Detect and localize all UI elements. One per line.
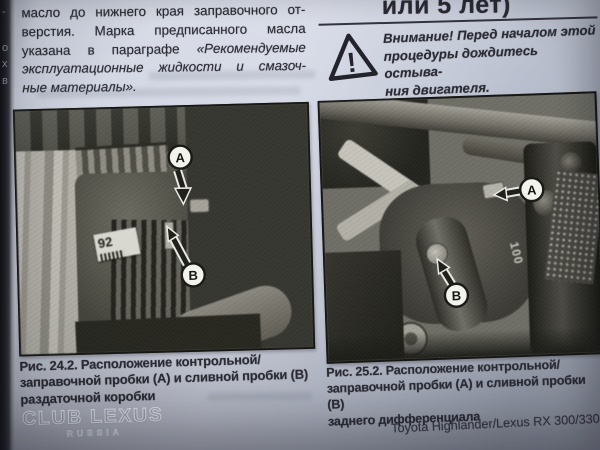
warning-triangle-icon: !	[322, 27, 380, 87]
figure-25-2-annotations: A B	[320, 93, 600, 361]
gutter-text-fragment: в	[2, 75, 8, 87]
book-gutter-shadow: - о х в	[0, 0, 15, 450]
book-page-photograph: - о х в масло до нижнего края заправочно…	[0, 0, 600, 450]
warning-text: Внимание! Перед началом этой процедуры д…	[383, 21, 600, 100]
label-b-letter: B	[188, 268, 198, 283]
label-a-letter: A	[175, 150, 185, 165]
gutter-text-fragment: х	[2, 58, 8, 70]
page-content: масло до нижнего края заправочного от- в…	[0, 0, 600, 450]
paragraph-line: ные материалы».	[22, 76, 306, 98]
left-column-paragraph: масло до нижнего края заправочного от- в…	[21, 1, 306, 98]
club-lexus-watermark: CLUB LEXUS RUSSIA	[22, 404, 183, 440]
figure-24-2-photo: 92 A B	[13, 102, 315, 357]
warning-exclamation-glyph: !	[345, 46, 358, 78]
gutter-text-fragment: -	[2, 6, 6, 18]
gutter-text-fragment: о	[2, 42, 8, 54]
figure-25-2-photo: 100 A B	[318, 91, 600, 364]
label-a-letter: A	[527, 182, 538, 197]
figure-24-2-caption: Рис. 24.2. Расположение контрольной/ зап…	[19, 350, 314, 408]
label-b-letter: B	[451, 288, 461, 303]
paragraph-line: эксплуатационные жидкости и смазоч-	[22, 57, 306, 79]
label-a-arrow	[506, 191, 520, 193]
figure-24-2-annotations: A B	[15, 104, 313, 355]
